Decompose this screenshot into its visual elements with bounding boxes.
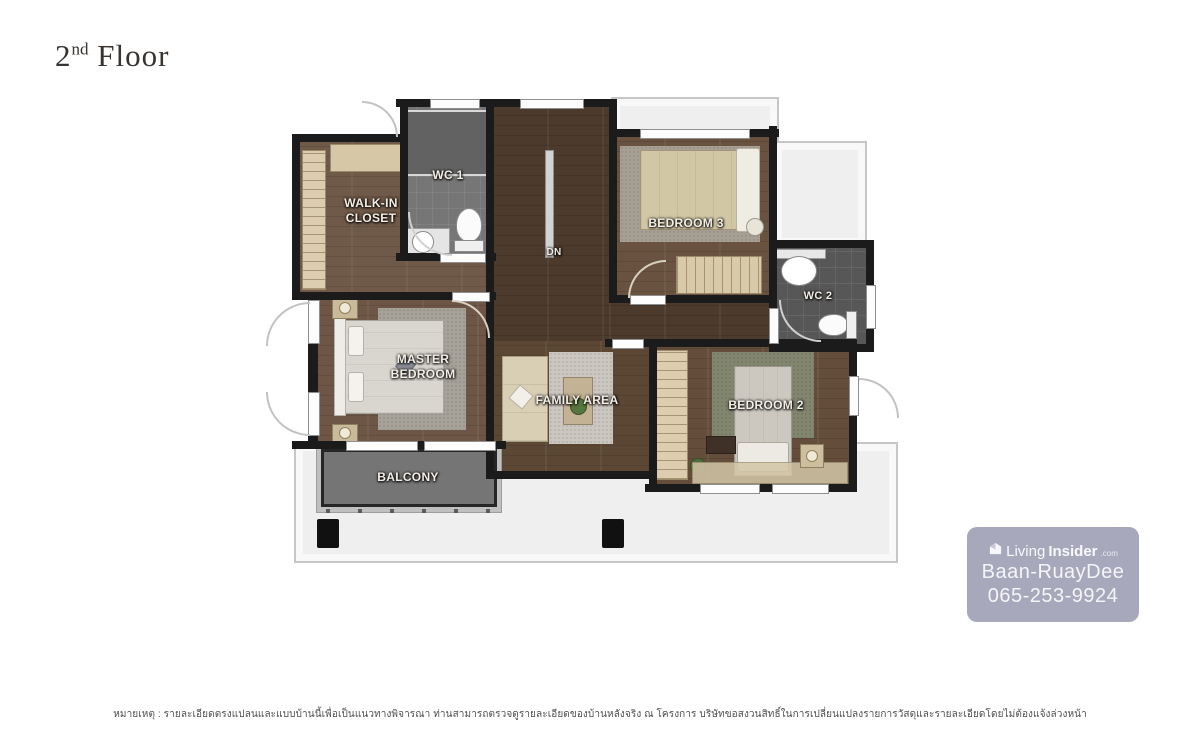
wall [292,134,300,300]
window [700,484,760,494]
room-label-bedroom2: BEDROOM 2 [706,398,826,413]
wc1-shower [405,110,488,176]
window [640,129,750,139]
bedroom2-floor-strip [692,462,848,484]
column [602,519,624,548]
walk-in-line1: WALK-IN [326,196,416,211]
title-ordinal: nd [72,40,89,59]
room-label-master-bedroom: MASTER BEDROOM [368,352,478,382]
watermark-phone: 065-253-9924 [988,585,1119,608]
master-lamp [339,427,351,439]
walk-in-line2: CLOSET [326,211,416,226]
master-line1: MASTER [368,352,478,367]
door-swing-arc [362,101,398,137]
room-label-bedroom3: BEDROOM 3 [626,216,746,231]
room-label-walk-in-closet: WALK-IN CLOSET [326,196,416,226]
roof-right [773,141,867,247]
balcony-railing [326,509,492,513]
title-text: Floor [97,38,169,73]
door-swing-arc [266,302,310,346]
door-gap [612,339,644,349]
wall [609,99,617,303]
watermark: LivingInsider.com Baan-RuayDee 065-253-9… [967,527,1139,622]
sliding-door [424,441,496,451]
room-label-wc2: WC 2 [790,290,846,304]
room-label-wc1: WC 1 [420,168,476,183]
door-swing-arc [859,378,899,418]
brand-tld: .com [1101,549,1118,558]
column [317,519,339,548]
wc2-toilet-tank [846,311,857,339]
master-pillow [348,372,364,402]
floor-plan-page: 2nd Floor [0,0,1200,750]
stair-railing [545,150,554,258]
watermark-agent-name: Baan-RuayDee [982,561,1125,584]
stairs-dn-label: DN [536,247,572,260]
disclaimer-footnote: หมายเหตุ : รายละเอียดตรงแปลนและแบบบ้านนี… [0,707,1200,722]
window [772,484,829,494]
sliding-door [346,441,418,451]
brand-insider: Insider [1048,543,1097,560]
watermark-brand: LivingInsider.com [988,542,1118,560]
title-number: 2 [55,38,72,73]
door-gap [769,308,779,344]
walkin-wardrobe [302,150,326,290]
wc1-toilet [456,208,482,242]
bedroom3-closet [676,256,762,294]
wc2-toilet [818,314,848,336]
bedroom2-wardrobe [656,350,688,480]
window [866,285,876,329]
door-swing-arc [266,392,310,436]
wall [769,126,777,248]
wall [486,471,657,479]
master-pillow [348,326,364,356]
master-line2: BEDROOM [368,367,478,382]
wall [400,99,408,261]
room-label-balcony: BALCONY [348,470,468,485]
livinginsider-logo-icon [988,542,1003,556]
wc2-sink [781,256,817,286]
wall [769,240,872,248]
room-label-family-area: FAMILY AREA [517,393,637,408]
bedroom3-side-table [746,218,764,236]
window [520,99,584,109]
master-lamp [339,302,351,314]
page-title: 2nd Floor [55,38,169,74]
window [430,99,480,109]
bedroom2-side-table-lamp [806,450,818,462]
master-headboard [334,318,346,416]
door-gap [849,376,859,416]
wall [649,339,657,492]
wc1-toilet-tank [454,240,484,252]
bedroom2-desk [706,436,736,454]
brand-living: Living [1006,543,1045,560]
